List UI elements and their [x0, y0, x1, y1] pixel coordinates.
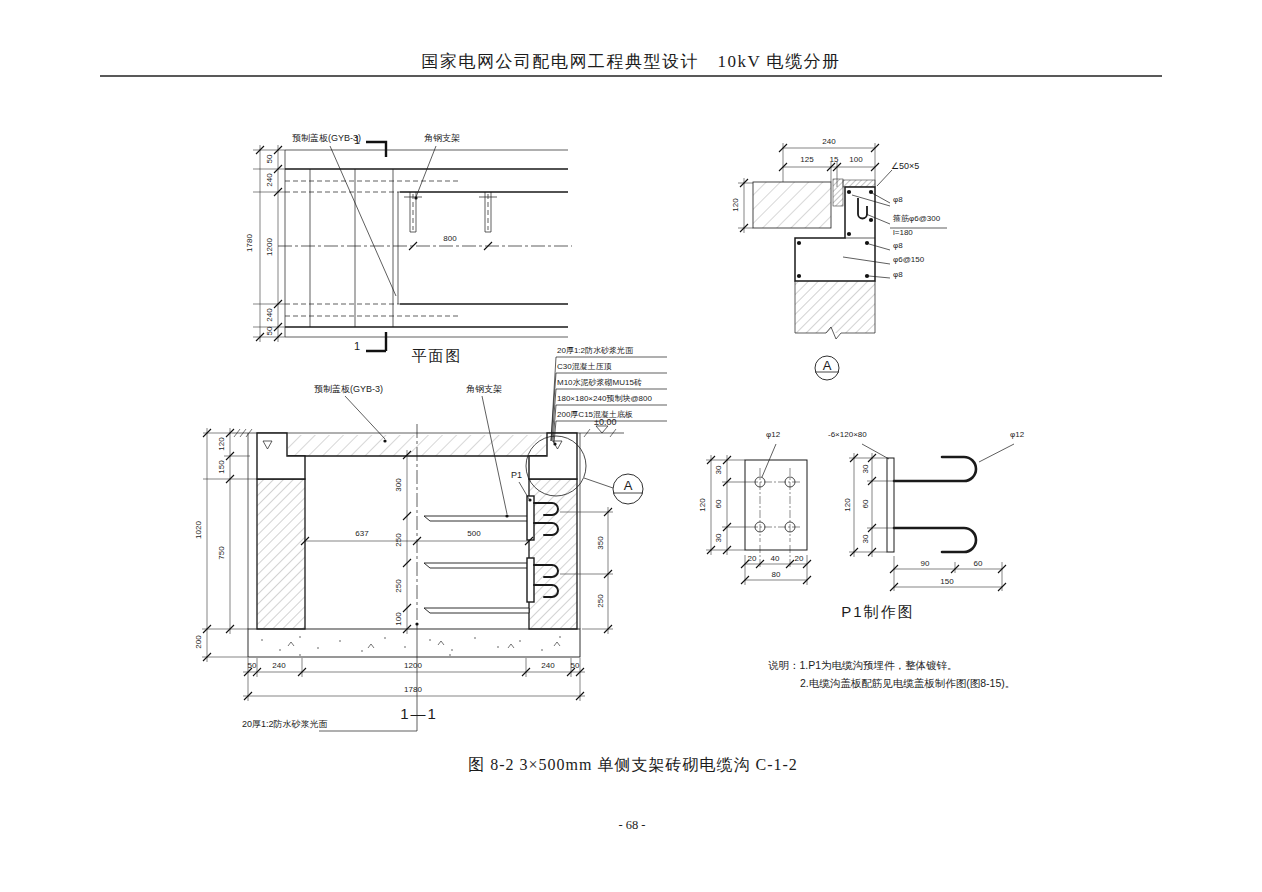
section-dim-h500: 500 — [467, 530, 480, 539]
p1-front-dim-80: 80 — [772, 571, 781, 580]
detail-a-dim-left: 125 — [800, 156, 813, 165]
section-dim-b50r: 50 — [571, 662, 580, 671]
plan-bracket-label: 角钢支架 — [424, 134, 460, 144]
plan-view-title: 平面图 — [412, 348, 463, 365]
section-dim-b1780: 1780 — [404, 686, 422, 695]
section-dim-l150: 150 — [218, 460, 227, 473]
notes-line-1: 说明：1.P1为电缆沟预埋件，整体镀锌。 — [768, 660, 958, 672]
section-dim-v100: 100 — [395, 612, 404, 625]
section-dim-b240l: 240 — [272, 662, 285, 671]
detail-a-bubble-label: A — [823, 359, 832, 373]
detail-a-mesh-label: φ6@150 — [893, 256, 924, 265]
section-bubble-label: A — [624, 479, 633, 493]
detail-a-dim-right: 100 — [849, 156, 862, 165]
section-dim-l120: 120 — [218, 437, 227, 450]
section-level-label: ±0.00 — [594, 418, 616, 428]
figure-caption: 图 8-2 3×500mm 单侧支架砖砌电缆沟 C-1-2 — [468, 755, 798, 776]
p1-front-dim-20a: 20 — [748, 555, 757, 564]
p1-front-dim-120: 120 — [699, 498, 708, 511]
section-title: 1—1 — [400, 706, 438, 723]
plan-section-mark-bottom: 1 — [354, 340, 360, 352]
section-dim-v250a: 250 — [395, 533, 404, 546]
section-spec-4: 180×180×240预制块@800 — [557, 395, 652, 404]
p1-hole-label: φ12 — [766, 431, 780, 440]
section-floor-finish-label: 20厚1:2防水砂浆光面 — [242, 720, 328, 730]
p1-front-dim-40: 40 — [771, 555, 780, 564]
section-bracket-label: 角钢支架 — [466, 385, 502, 395]
notes-line-2: 2.电缆沟盖板配筋见电缆盖板制作图(图8-15)。 — [800, 678, 1015, 690]
p1-front-dim-20b: 20 — [795, 555, 804, 564]
detail-a-dim-gap: 15 — [830, 156, 839, 165]
detail-a-rebar-bottom-label: φ8 — [893, 271, 903, 280]
plan-dim-wall-bottom: 240 — [266, 308, 275, 321]
p1-side-dim-30b: 30 — [862, 535, 871, 544]
p1-side-dim-30a: 30 — [862, 465, 871, 474]
p1-front-dim-60: 60 — [715, 500, 724, 509]
detail-a-rebar-top-label: φ8 — [893, 196, 903, 205]
section-cover-plate-label: 预制盖板(GYB-3) — [314, 385, 383, 395]
section-dim-b240r: 240 — [541, 662, 554, 671]
plan-dim-edge-bottom: 50 — [266, 327, 275, 336]
detail-a-rebar-mid-label: φ8 — [893, 242, 903, 251]
section-dim-b50l: 50 — [248, 662, 257, 671]
p1-plate-label: -6×120×80 — [828, 431, 867, 440]
p1-rod-label: φ12 — [1010, 431, 1024, 440]
plan-dim-wall-top: 240 — [266, 173, 275, 186]
p1-front-dim-30a: 30 — [715, 466, 724, 475]
p1-side-dim-60: 60 — [862, 500, 871, 509]
section-p1-label: P1 — [511, 471, 522, 481]
section-dim-h637: 637 — [355, 530, 368, 539]
plan-dim-bracket-spacing: 800 — [443, 235, 456, 244]
document-page: 国家电网公司配电网工程典型设计 10kV 电缆分册 预制盖板(GYB-3) 角钢… — [0, 0, 1262, 892]
detail-a-dim-height: 120 — [732, 198, 741, 211]
p1-side-dim-60h: 60 — [974, 560, 983, 569]
section-dim-l750: 750 — [218, 546, 227, 559]
detail-a-angle-label: ∠50×5 — [891, 162, 919, 172]
section-dim-v300: 300 — [395, 478, 404, 491]
p1-detail-title: P1制作图 — [841, 604, 914, 621]
plan-dim-edge-top: 50 — [266, 155, 275, 164]
section-spec-3: M10水泥砂浆砌MU15砖 — [557, 379, 642, 388]
detail-a-stirrup-label: 箍筋φ6@300 — [893, 215, 940, 224]
detail-a-dim-total: 240 — [822, 138, 835, 147]
plan-cover-plate-label: 预制盖板(GYB-3) — [292, 134, 361, 144]
p1-side-dim-120: 120 — [844, 498, 853, 511]
p1-front-dim-30b: 30 — [715, 534, 724, 543]
section-dim-b1200: 1200 — [404, 662, 422, 671]
plan-dim-trench: 1200 — [266, 238, 275, 256]
section-spec-2: C30混凝土压顶 — [557, 363, 612, 372]
section-spec-1: 20厚1:2防水砂浆光面 — [557, 347, 633, 356]
page-number: - 68 - — [618, 818, 645, 833]
detail-a-stirrup-length-label: l=180 — [893, 229, 913, 238]
floor-speckle — [261, 636, 561, 656]
section-dim-v250b: 250 — [395, 579, 404, 592]
section-dim-r250: 250 — [597, 594, 606, 607]
p1-side-dim-90: 90 — [921, 560, 930, 569]
p1-side-dim-150: 150 — [940, 578, 953, 587]
section-dim-r350: 350 — [597, 536, 606, 549]
plan-dim-total: 1780 — [246, 234, 255, 252]
plan-view-drawing — [253, 142, 572, 351]
page-title: 国家电网公司配电网工程典型设计 10kV 电缆分册 — [421, 50, 840, 73]
section-dim-l1020: 1020 — [195, 521, 204, 539]
plan-section-mark-top: 1 — [354, 134, 360, 146]
section-dim-l200: 200 — [195, 635, 204, 648]
